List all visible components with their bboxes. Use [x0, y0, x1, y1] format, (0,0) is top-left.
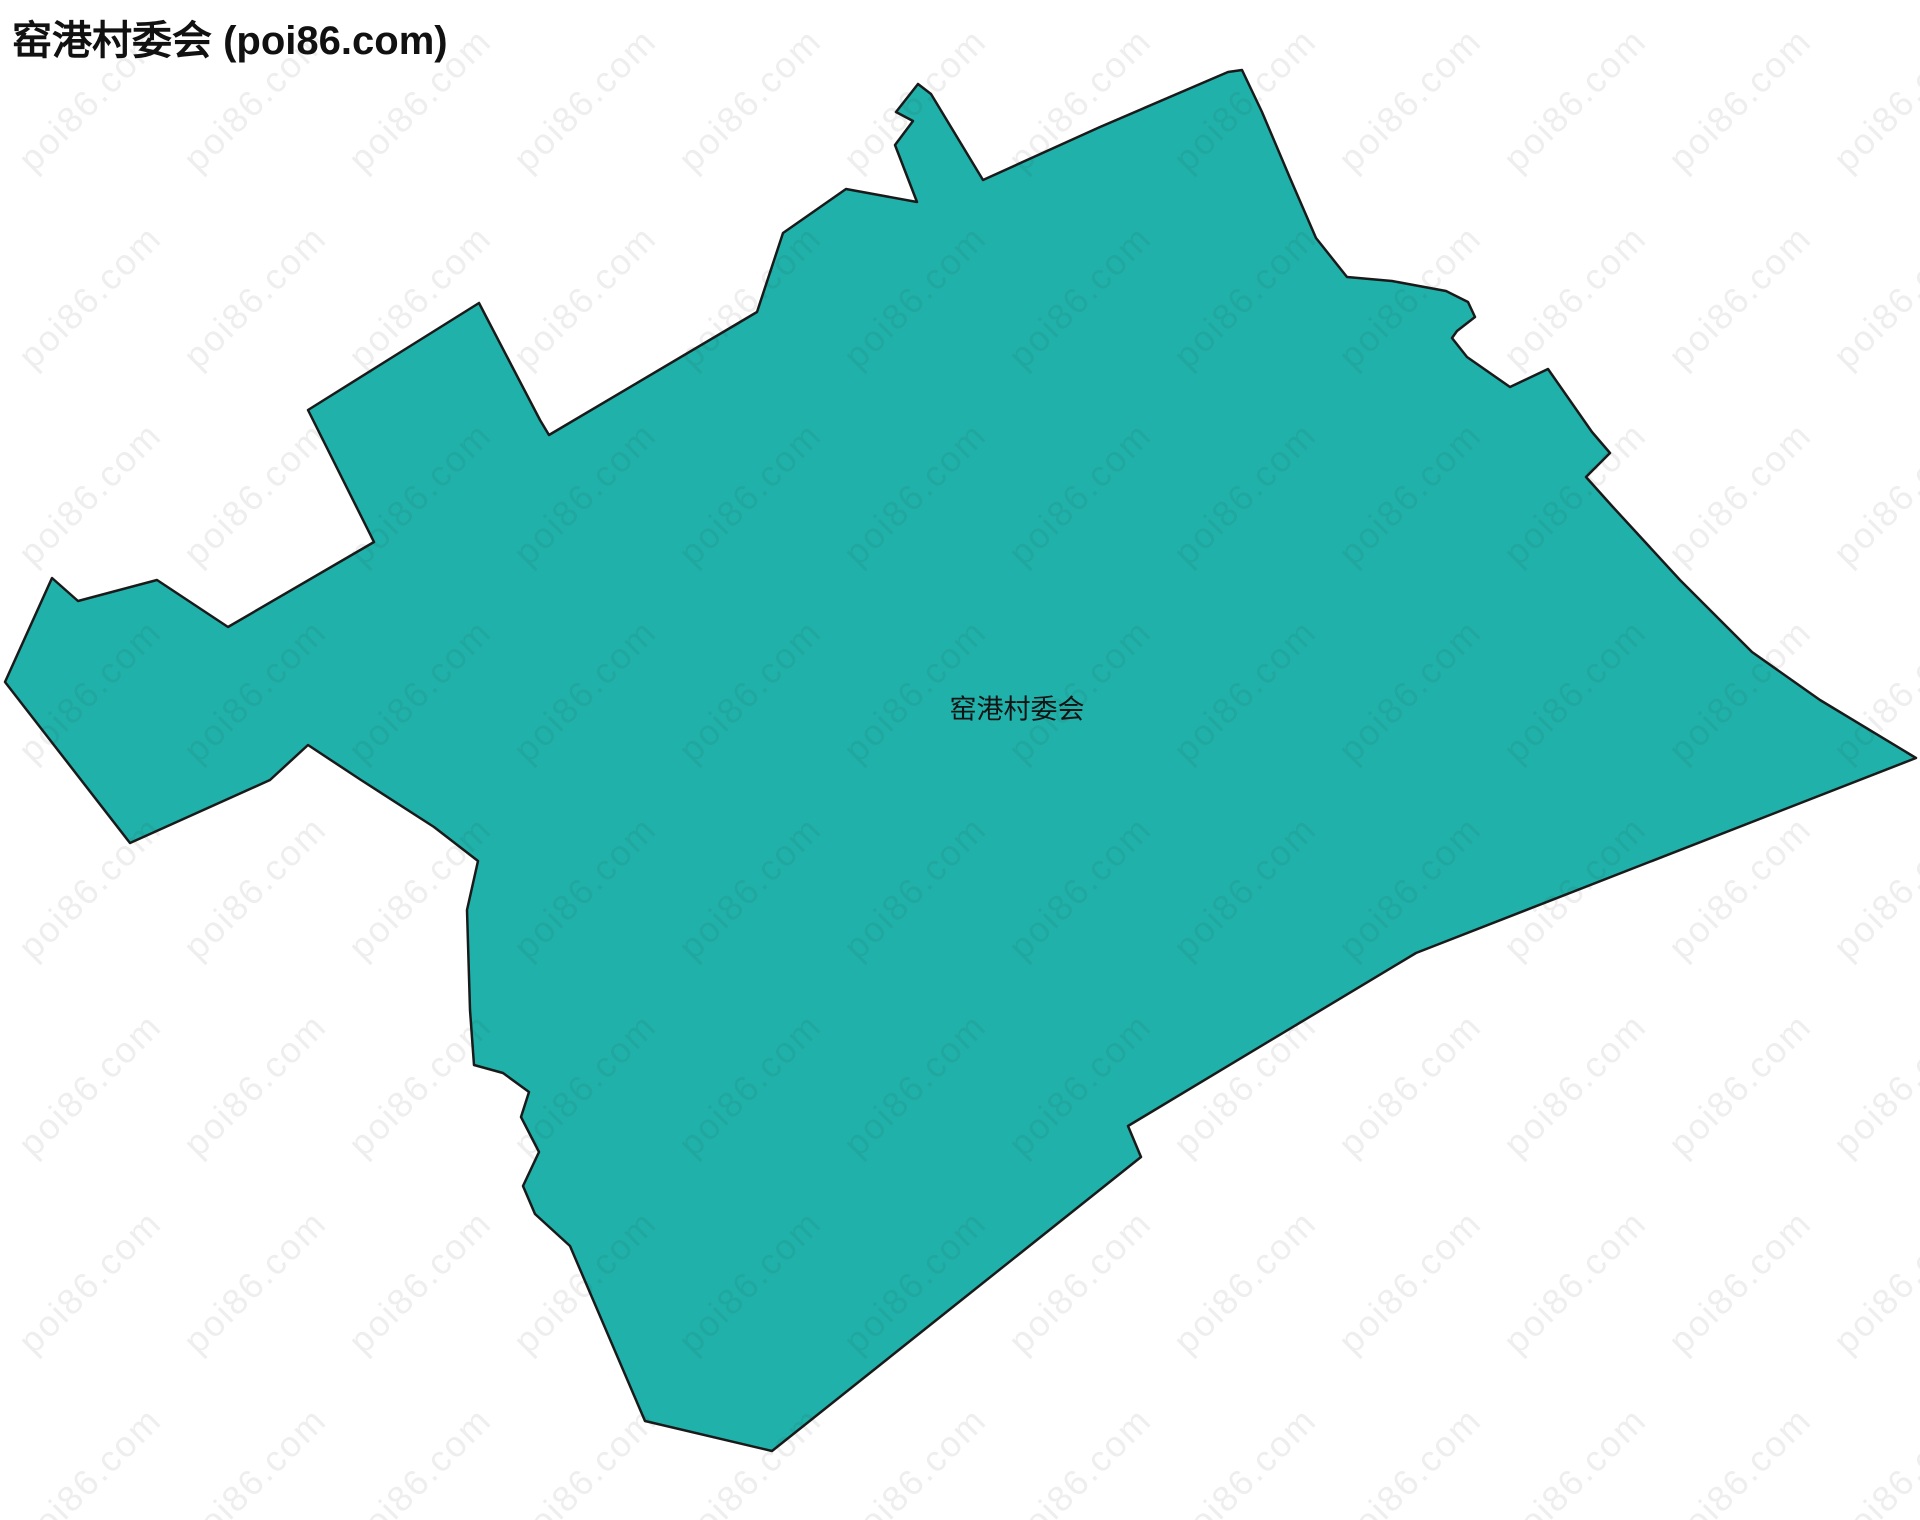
region-map-canvas — [0, 0, 1920, 1520]
map-stage: poi86.compoi86.compoi86.compoi86.compoi8… — [0, 0, 1920, 1520]
region-label: 窑港村委会 — [950, 688, 1085, 727]
page-title: 窑港村委会 (poi86.com) — [12, 8, 448, 66]
region-polygon-yaogang — [5, 70, 1916, 1451]
